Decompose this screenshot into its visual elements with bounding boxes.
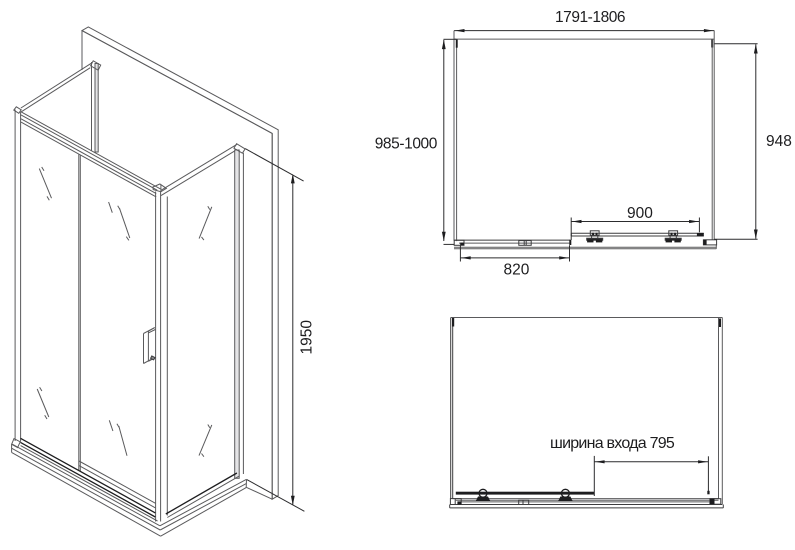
svg-text:1950: 1950: [299, 320, 316, 355]
svg-text:900: 900: [627, 205, 653, 222]
svg-text:820: 820: [504, 261, 530, 278]
svg-text:1791-1806: 1791-1806: [555, 9, 625, 26]
svg-text:985-1000: 985-1000: [375, 135, 438, 152]
svg-text:ширина входа 795: ширина входа 795: [550, 435, 675, 452]
svg-text:948: 948: [766, 133, 792, 150]
